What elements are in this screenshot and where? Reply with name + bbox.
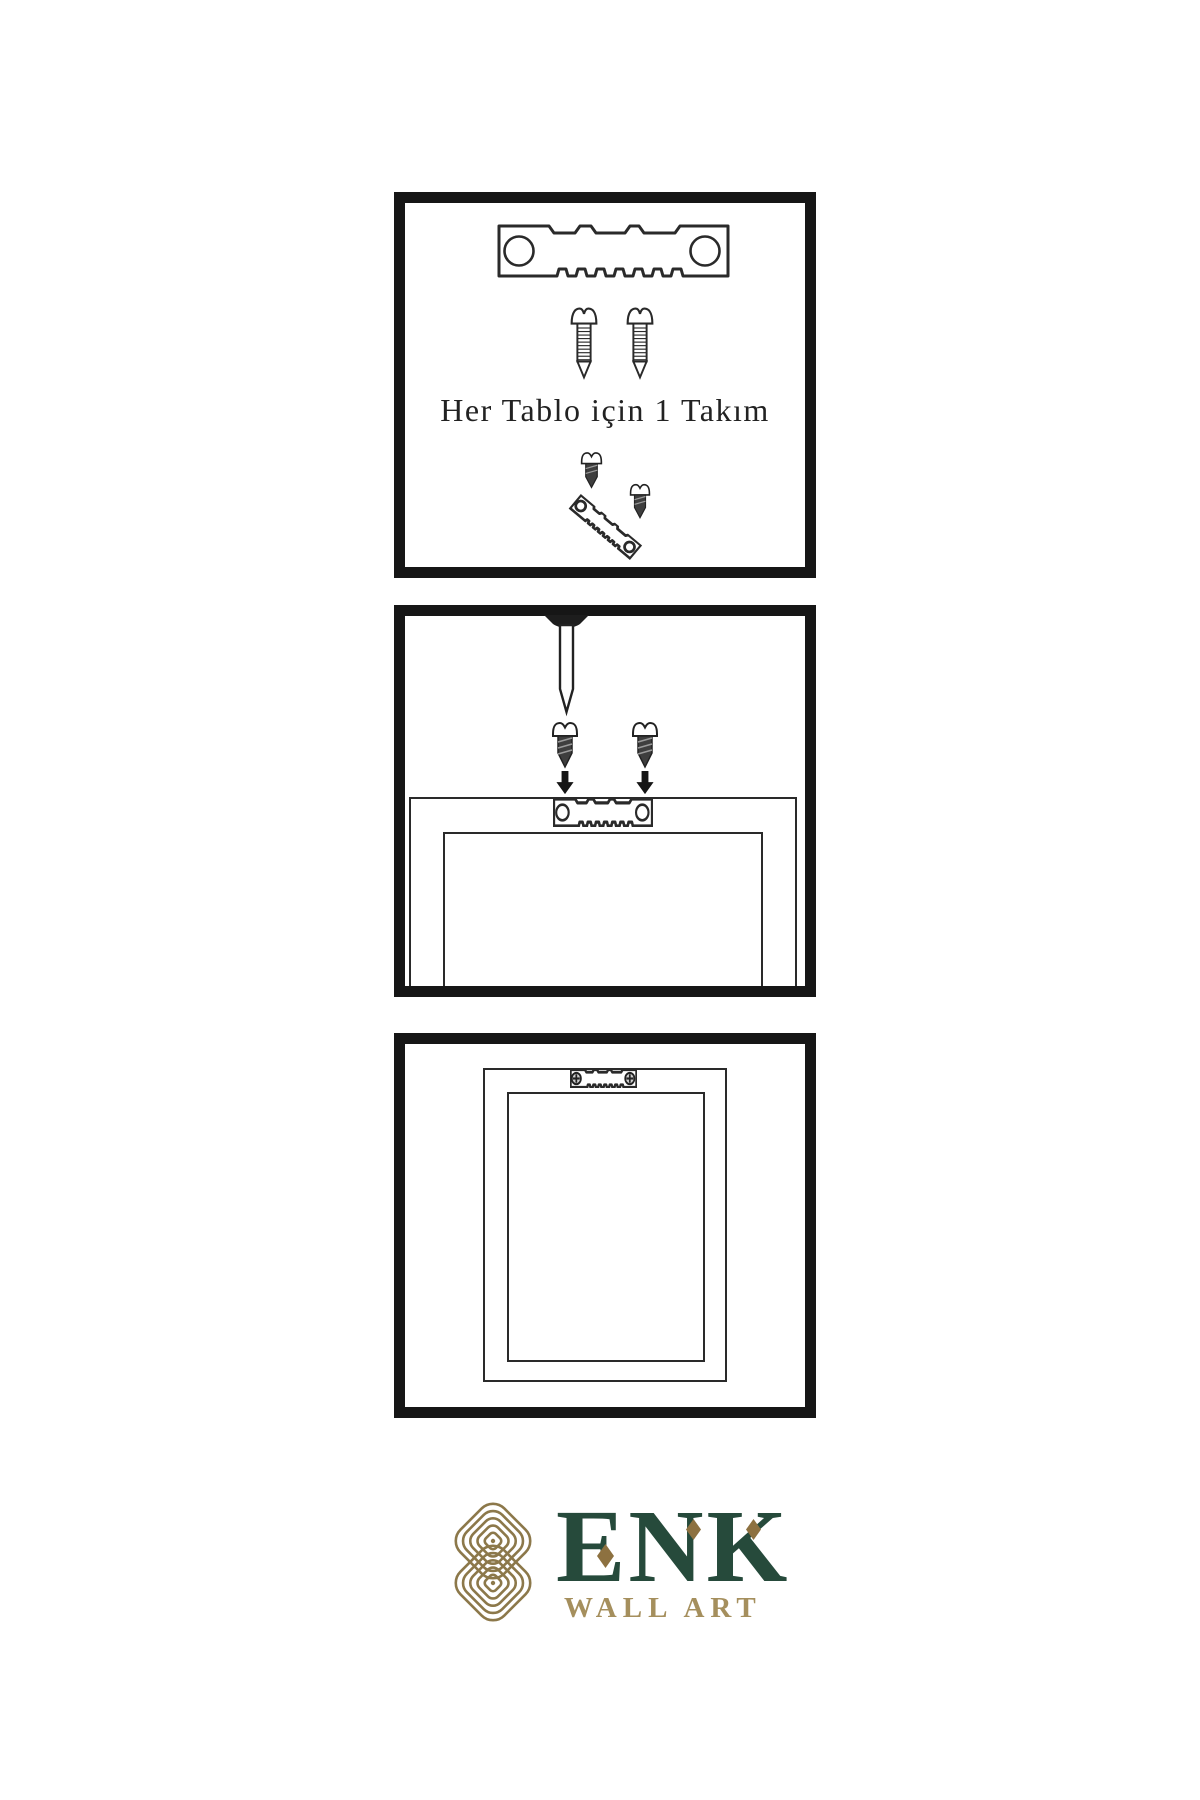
dark-screw-icon (551, 721, 579, 769)
step-1-panel: Her Tablo için 1 Takım (394, 192, 816, 578)
down-arrow-icon (635, 771, 655, 795)
frame-back-inner-outline (443, 832, 763, 986)
down-arrow-icon (555, 771, 575, 795)
dark-screw-icon (629, 483, 651, 521)
sawtooth-hanger-icon (553, 798, 653, 827)
screw-icon (625, 303, 655, 383)
screw-icon (569, 303, 599, 383)
kit-caption: Her Tablo için 1 Takım (405, 392, 805, 429)
dark-screw-icon (631, 721, 659, 769)
sawtooth-hanger-icon (497, 224, 730, 278)
instruction-sheet: Her Tablo için 1 Takım (0, 0, 1200, 1800)
brand-name: ENK (556, 1495, 790, 1599)
brand-subtitle: WALL ART (564, 1592, 762, 1625)
hung-frame-inner-outline (507, 1092, 705, 1362)
knot-logo-icon (433, 1496, 553, 1628)
step-2-panel (394, 605, 816, 997)
dark-screw-icon (580, 451, 603, 491)
screw-into-hanger-assembly (577, 451, 677, 563)
mounted-sawtooth-hanger-icon (570, 1069, 637, 1088)
nail-icon (543, 615, 590, 717)
step-3-panel (394, 1033, 816, 1418)
